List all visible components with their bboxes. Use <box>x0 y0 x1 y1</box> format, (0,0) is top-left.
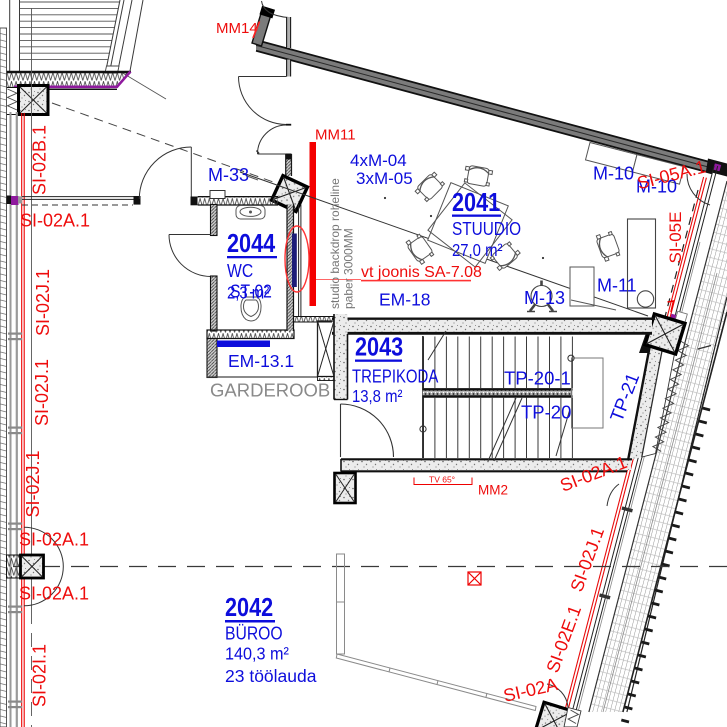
svg-text:TV 65°: TV 65° <box>429 475 455 485</box>
svg-text:SI-02A.1: SI-02A.1 <box>19 584 89 604</box>
svg-text:TP-20: TP-20 <box>521 402 571 423</box>
svg-text:4xM-04: 4xM-04 <box>350 151 407 170</box>
svg-text:WC: WC <box>227 260 253 282</box>
svg-text:vt joonis SA-7.08: vt joonis SA-7.08 <box>361 264 482 281</box>
svg-text:SI-02A.1: SI-02A.1 <box>19 530 89 550</box>
svg-text:paber 3000MM: paber 3000MM <box>342 228 356 309</box>
svg-text:2042: 2042 <box>225 594 273 622</box>
svg-text:2043: 2043 <box>355 334 403 362</box>
svg-text:SI-05E: SI-05E <box>666 212 685 264</box>
svg-text:23 töölauda: 23 töölauda <box>225 666 317 686</box>
svg-text:M-33: M-33 <box>208 165 249 185</box>
svg-text:MM14: MM14 <box>216 20 258 37</box>
svg-text:27,0 m²: 27,0 m² <box>452 241 503 260</box>
svg-text:GARDEROOB: GARDEROOB <box>210 380 330 401</box>
svg-text:STUUDIO: STUUDIO <box>452 218 521 239</box>
svg-text:TP-20-1: TP-20-1 <box>504 368 571 389</box>
svg-text:M-11: M-11 <box>597 276 637 296</box>
svg-text:EM-13.1: EM-13.1 <box>228 351 294 371</box>
svg-text:SI-02I.1: SI-02I.1 <box>30 644 50 707</box>
svg-text:2044: 2044 <box>227 230 276 258</box>
svg-text:M-10: M-10 <box>593 164 634 184</box>
svg-text:SI-02A.1: SI-02A.1 <box>20 211 90 231</box>
svg-text:SI-02J.1: SI-02J.1 <box>23 450 43 517</box>
svg-text:MM11: MM11 <box>315 127 356 144</box>
svg-text:SI-02J.1: SI-02J.1 <box>32 359 52 426</box>
svg-text:TREPIKODA: TREPIKODA <box>352 366 438 387</box>
svg-text:SI-02J.1: SI-02J.1 <box>33 269 53 336</box>
svg-text:MM2: MM2 <box>478 483 508 498</box>
svg-text:BÜROO: BÜROO <box>225 622 283 644</box>
svg-text:EM-18: EM-18 <box>379 290 431 310</box>
svg-text:140,3 m²: 140,3 m² <box>225 644 289 664</box>
svg-text:2041: 2041 <box>452 189 500 217</box>
svg-text:SI-02B.1: SI-02B.1 <box>30 125 50 195</box>
svg-text:ST-02: ST-02 <box>230 280 272 302</box>
svg-text:3xM-05: 3xM-05 <box>356 169 413 188</box>
svg-text:M-13: M-13 <box>524 288 565 308</box>
svg-text:studio backdrop roheline: studio backdrop roheline <box>328 178 342 309</box>
svg-text:13,8 m²: 13,8 m² <box>352 387 403 406</box>
